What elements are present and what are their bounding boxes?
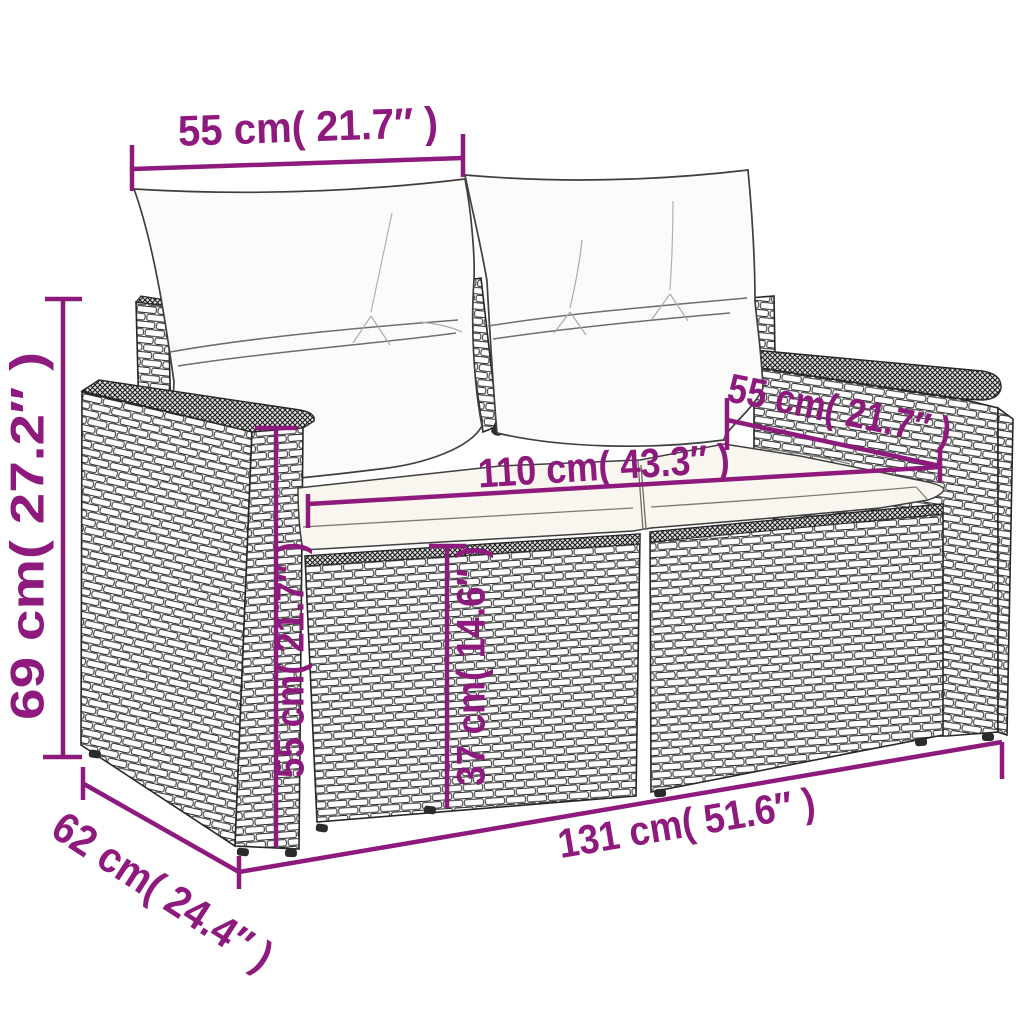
svg-text:69 cm( 27.2″ ): 69 cm( 27.2″ ): [0, 352, 53, 720]
svg-text:37 cm( 14.6″ ): 37 cm( 14.6″ ): [450, 546, 494, 786]
svg-text:55 cm( 21.7″ ): 55 cm( 21.7″ ): [269, 542, 313, 778]
svg-text:55 cm( 21.7″ ): 55 cm( 21.7″ ): [177, 99, 439, 156]
